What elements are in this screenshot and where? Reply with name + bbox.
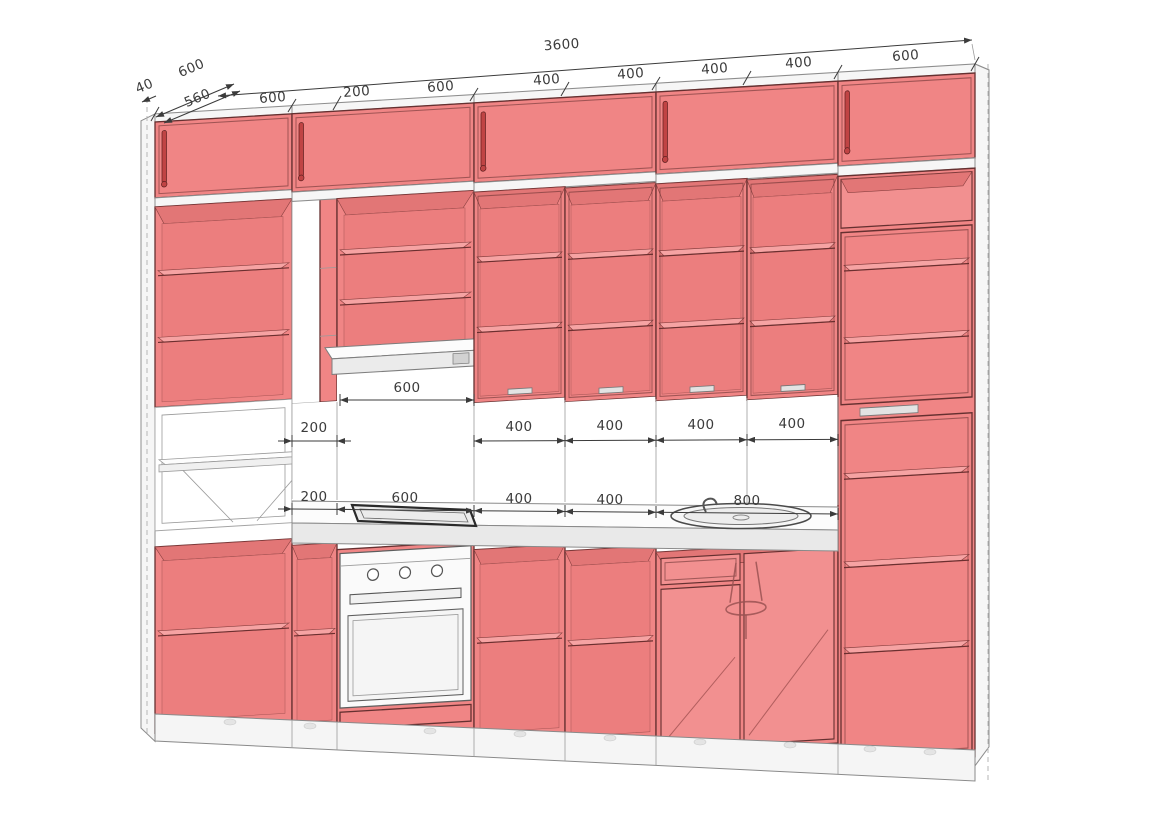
dim-label: 600 (394, 380, 421, 396)
dim-label: 800 (734, 493, 761, 509)
dim-label: 560 (182, 86, 213, 111)
tall-door-upper (841, 225, 972, 405)
interior-back (162, 217, 283, 402)
dim-label: 400 (785, 54, 813, 72)
dim-label: 600 (392, 490, 419, 506)
door-handle (299, 122, 304, 177)
cabinet-door-handle (508, 388, 532, 395)
dim-label: 400 (688, 417, 715, 433)
dim-label: 200 (301, 489, 328, 505)
handle-ball (161, 181, 167, 187)
dim-label: 400 (597, 492, 624, 508)
tall-cabinet-right-column (838, 63, 989, 774)
dim-label: 600 (176, 56, 207, 81)
cabinet-door-handle (690, 386, 714, 393)
dim-label: 200 (343, 83, 371, 101)
kitchen-drawing: 3600 600 200 600 400 400 400 400 600 600… (0, 0, 1152, 825)
door-handle (162, 130, 167, 183)
wall-400-column-4 (747, 175, 838, 536)
dim-label: 400 (617, 65, 645, 83)
sink-door-right (744, 548, 834, 744)
oven-knob (432, 565, 443, 577)
dim-label: 400 (506, 491, 533, 507)
dim-label: 400 (597, 418, 624, 434)
oven-door (348, 609, 463, 701)
oven-knob (400, 567, 411, 579)
dim-label: 200 (301, 420, 328, 436)
lift-door (155, 114, 292, 198)
door-handle (663, 101, 668, 158)
tall-door-lower (841, 413, 972, 760)
dim-label: 400 (779, 416, 806, 432)
door-handle (845, 91, 850, 150)
dim-label: 600 (259, 89, 287, 107)
hood-control (453, 353, 469, 364)
dim-label: 400 (506, 419, 533, 435)
oven-knob (368, 569, 379, 581)
door-handle (481, 112, 486, 168)
dim-label: 40 (133, 75, 156, 97)
sink-door-left (661, 585, 740, 750)
filler-200-column (292, 197, 337, 734)
left-side-panel (141, 114, 155, 742)
dim-label: 600 (427, 78, 455, 96)
wall-base-400-column-2 (565, 183, 656, 750)
cabinet-door-handle (781, 384, 805, 391)
dim-label: 400 (533, 71, 561, 89)
dim-label: 600 (892, 47, 920, 65)
cabinet-door-handle (599, 387, 623, 394)
dim-label: 400 (701, 60, 729, 78)
right-side-panel (975, 63, 989, 766)
dim-label: 3600 (543, 36, 580, 55)
lift-door (838, 73, 975, 166)
